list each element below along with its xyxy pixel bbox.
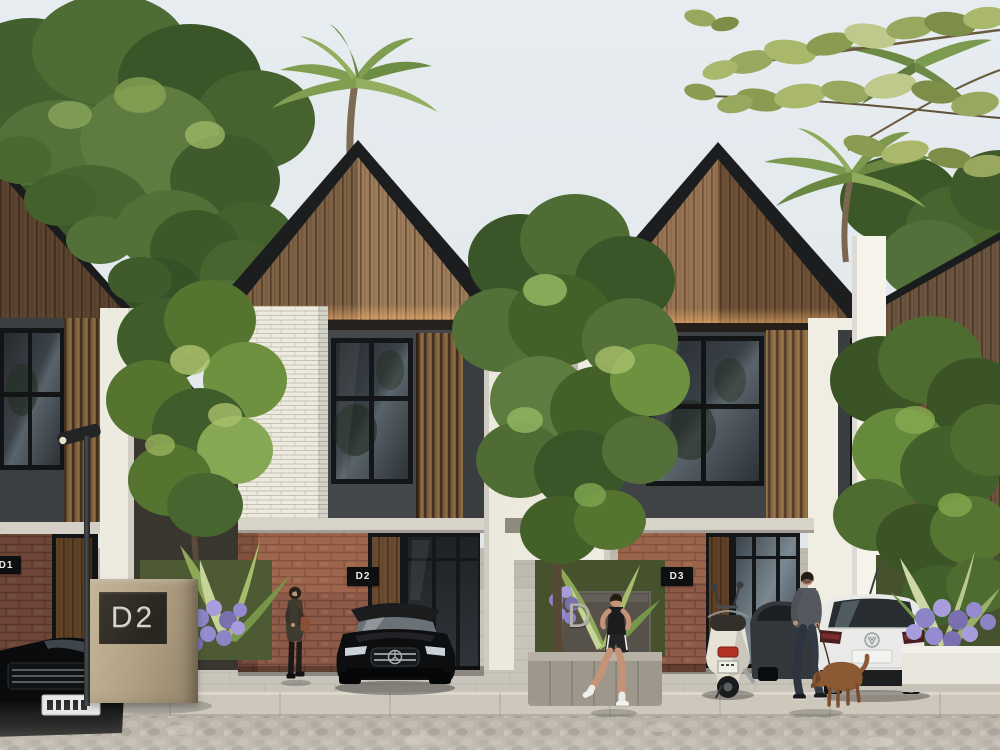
unit-plate-d3: D3 (661, 567, 693, 586)
monument-sign: D2 (88, 579, 198, 703)
architectural-rendering: D1 D2 D3 D2 D (0, 0, 1000, 750)
unit-plate-d1-label: D1 (0, 560, 13, 571)
monument-label: D2 (111, 601, 155, 635)
walkway-sign-letter: D (567, 597, 594, 636)
cobblestone-road (0, 716, 1000, 750)
white-planter (902, 646, 1000, 692)
unit-plate-d1: D1 (0, 556, 21, 574)
unit-plate-d2: D2 (347, 567, 379, 586)
lamp-pole-left (84, 436, 90, 706)
unit-plate-d2-label: D2 (356, 571, 371, 582)
monument-plate: D2 (99, 592, 167, 644)
unit-plate-d3-label: D3 (670, 571, 685, 582)
